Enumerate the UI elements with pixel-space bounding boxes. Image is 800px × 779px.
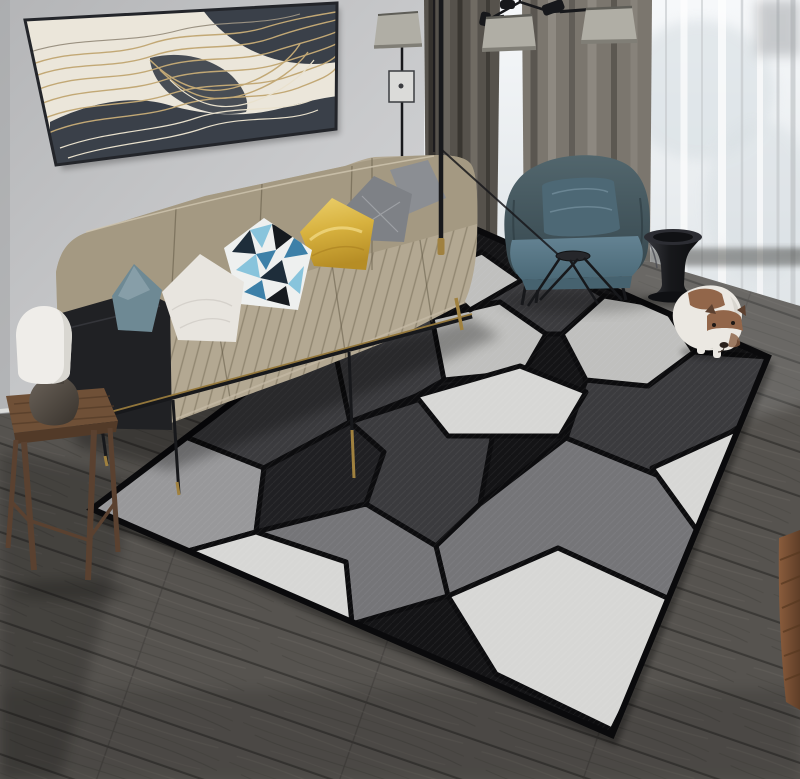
dog-nose bbox=[720, 342, 729, 348]
floor-lamp-shade bbox=[374, 12, 422, 47]
living-room-scene bbox=[0, 0, 800, 779]
living-room-photo bbox=[0, 0, 800, 779]
lamp-shade-right bbox=[581, 7, 637, 42]
lamp-shade-center bbox=[482, 15, 536, 50]
